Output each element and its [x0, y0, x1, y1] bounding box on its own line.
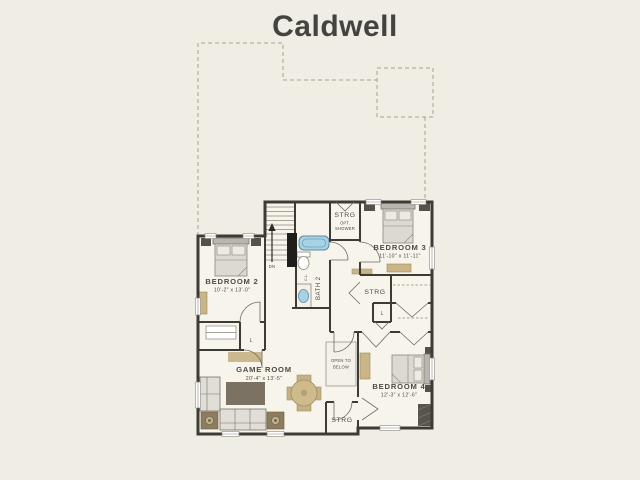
rug: [228, 352, 262, 362]
open-to-below: OPEN TO BELOW: [326, 342, 356, 386]
bedroom3-dims: 11'-10" x 11'-11": [379, 254, 421, 260]
bedroom2-dims: 10'-2" x 13'-0": [214, 288, 250, 294]
dresser: [360, 353, 370, 379]
open-to-below-label-2: BELOW: [333, 365, 349, 370]
mechanical-chase: [418, 404, 432, 426]
game-room-dims: 20'-4" x 13'-5": [246, 376, 282, 382]
open-to-below-label-1: OPEN TO: [331, 358, 352, 363]
end-table: [267, 412, 284, 429]
wall-block: [287, 233, 297, 267]
linen-right-label: L: [381, 311, 384, 317]
stairs-dn-label: DN: [269, 264, 275, 269]
storage-bottom-label: STRG: [331, 417, 352, 424]
storage-top-option-2: SHOWER: [335, 226, 355, 231]
plan-title: Caldwell: [272, 10, 398, 43]
bed: [381, 203, 415, 243]
bedroom4-label: BEDROOM 4: [372, 382, 425, 391]
bath-sink: [296, 284, 311, 308]
nightstand: [251, 238, 261, 246]
nightstand: [201, 238, 211, 246]
storage-top-label: STRG: [334, 212, 355, 219]
end-table: [201, 412, 218, 429]
storage-top-option-1: OPT.: [340, 221, 350, 226]
bath2-closet-label: C.L.: [304, 274, 308, 281]
bench: [387, 264, 411, 272]
game-room-label: GAME ROOM: [236, 365, 292, 374]
bedroom2-label: BEDROOM 2: [205, 277, 258, 286]
storage-mid-label: STRG: [364, 289, 385, 296]
closet-rod: [206, 326, 236, 339]
shelf: [352, 269, 372, 274]
bedroom3-label: BEDROOM 3: [373, 243, 426, 252]
bath2-label: BATH 2: [316, 276, 322, 300]
rug: [226, 382, 265, 405]
bed: [392, 354, 430, 384]
floor-plan-svg: Caldwell DN: [0, 0, 640, 480]
linen-left-label: L: [250, 338, 253, 344]
bedroom4-dims: 12'-3" x 12'-6": [381, 393, 417, 399]
bathtub: [299, 236, 329, 250]
floor-plan-page: Caldwell DN: [0, 0, 640, 480]
toilet: [297, 252, 310, 270]
bed: [213, 238, 249, 276]
